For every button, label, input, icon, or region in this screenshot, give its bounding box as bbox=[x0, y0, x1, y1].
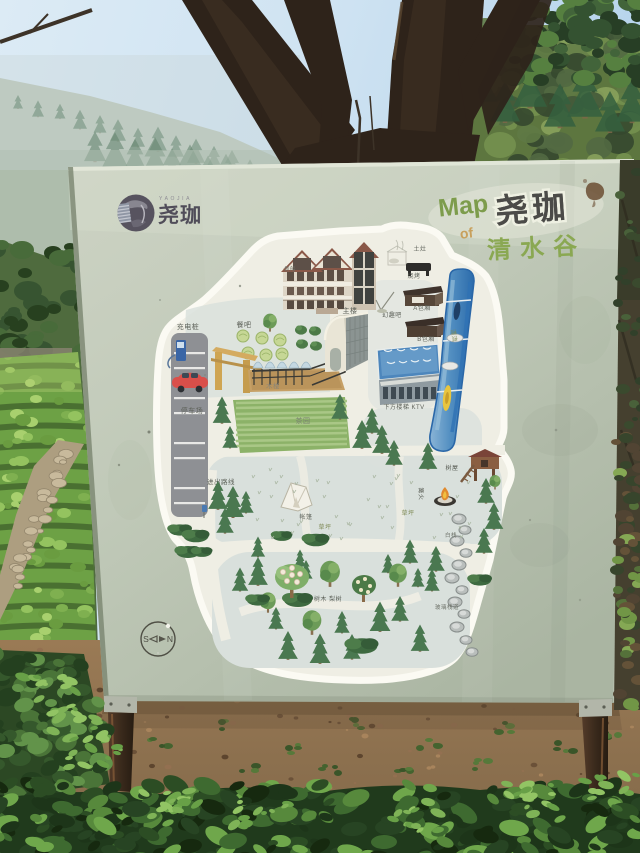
svg-text:树屋: 树屋 bbox=[445, 464, 458, 472]
svg-text:清水谷: 清水谷 bbox=[486, 232, 586, 264]
svg-text:主楼: 主楼 bbox=[343, 306, 358, 315]
svg-text:of: of bbox=[459, 224, 474, 241]
svg-text:尧珈: 尧珈 bbox=[158, 204, 202, 227]
svg-text:土灶: 土灶 bbox=[413, 245, 426, 253]
svg-text:烧烤: 烧烤 bbox=[407, 272, 420, 280]
svg-text:尧珈: 尧珈 bbox=[494, 187, 570, 229]
svg-text:茶园: 茶园 bbox=[296, 416, 311, 425]
svg-text:餐吧: 餐吧 bbox=[237, 320, 252, 329]
svg-text:A包厢: A包厢 bbox=[413, 304, 431, 312]
svg-text:木楼: 木楼 bbox=[266, 381, 280, 390]
svg-text:N: N bbox=[167, 634, 173, 644]
svg-text:充电桩: 充电桩 bbox=[177, 322, 200, 331]
svg-text:玻璃栈道: 玻璃栈道 bbox=[435, 603, 459, 611]
svg-text:YAOJIA: YAOJIA bbox=[159, 196, 192, 202]
svg-text:草坪: 草坪 bbox=[318, 523, 331, 531]
svg-text:白栈: 白栈 bbox=[445, 531, 457, 539]
svg-text:停车场: 停车场 bbox=[181, 406, 204, 415]
svg-text:进出路线: 进出路线 bbox=[207, 477, 235, 486]
svg-text:B包厢: B包厢 bbox=[417, 335, 435, 343]
svg-text:树木 梨树: 树木 梨树 bbox=[314, 595, 342, 603]
svg-text:下方楼梯 KTV: 下方楼梯 KTV bbox=[383, 403, 424, 411]
svg-text:划船: 划船 bbox=[284, 265, 296, 273]
svg-text:帐篷: 帐篷 bbox=[299, 513, 312, 521]
svg-text:草坪: 草坪 bbox=[401, 509, 414, 517]
svg-text:Map: Map bbox=[437, 190, 490, 223]
svg-text:S: S bbox=[143, 634, 149, 644]
